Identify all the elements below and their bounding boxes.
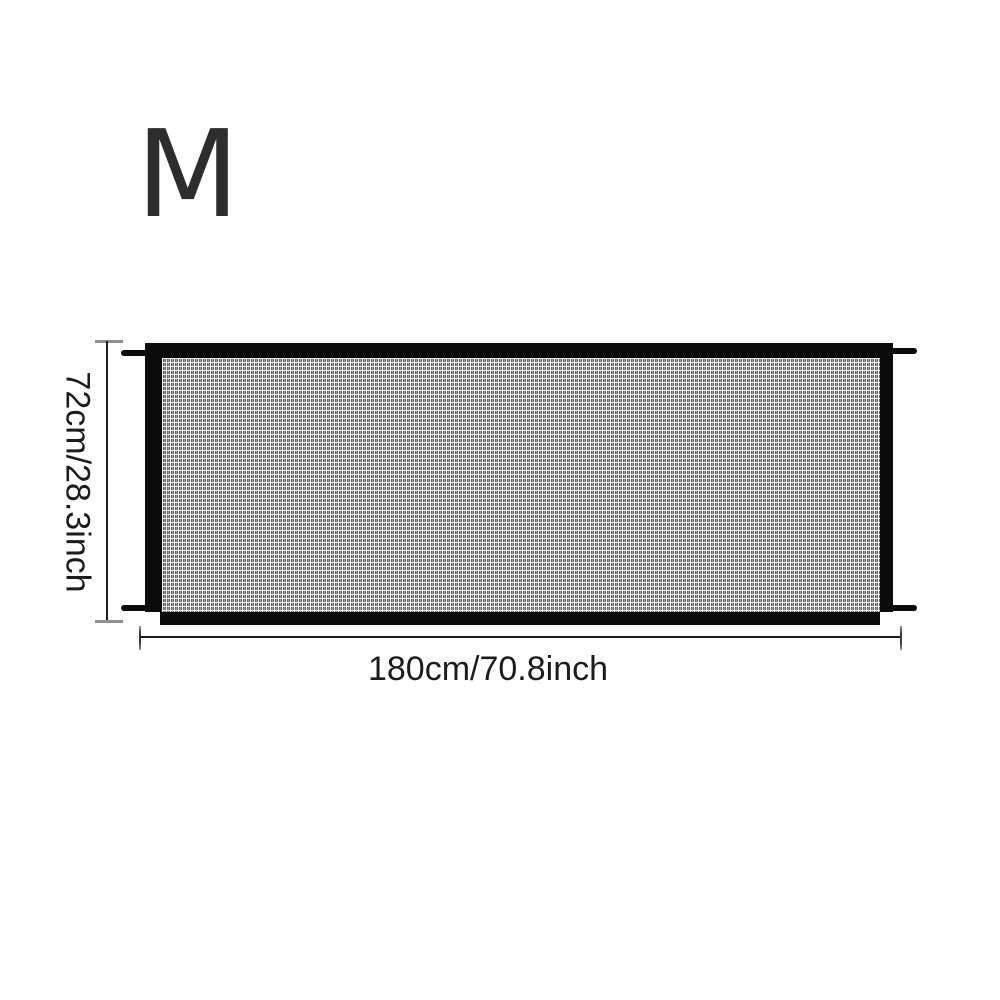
width-dimension-left-tick: [139, 626, 141, 650]
size-option-label: M: [136, 116, 240, 236]
gate-mesh-texture: [162, 358, 880, 612]
height-dimension-bottom-cap: [95, 620, 123, 623]
height-dimension-line: [106, 341, 108, 622]
width-dimension-line: [140, 636, 901, 638]
mounting-strap-top-left: [121, 350, 148, 356]
gate-frame: [145, 343, 893, 612]
width-dimension-right-tick: [900, 626, 902, 650]
mounting-strap-top-right: [890, 348, 917, 354]
mounting-strap-bottom-right: [890, 605, 917, 611]
width-dimension-label: 180cm/70.8inch: [368, 650, 608, 689]
product-dimension-diagram: M 72cm/28.3inch 180cm/70.8inch: [0, 0, 1000, 1000]
height-dimension-top-cap: [95, 340, 123, 343]
mounting-strap-bottom-left: [121, 605, 148, 611]
gate-bottom-rail: [160, 612, 880, 625]
height-dimension-label: 72cm/28.3inch: [58, 371, 97, 592]
